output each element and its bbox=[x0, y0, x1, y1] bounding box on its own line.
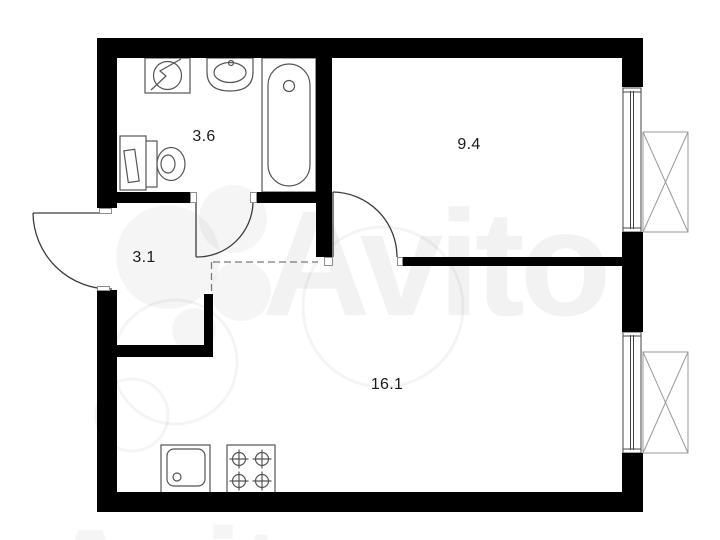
door-jamb bbox=[250, 192, 257, 203]
bathtub-icon bbox=[262, 58, 316, 192]
door-jamb bbox=[97, 286, 110, 291]
room-door bbox=[333, 192, 397, 257]
wall-room-divider-vertical bbox=[316, 58, 332, 257]
ac-basket-icon bbox=[643, 132, 688, 232]
door-jamb bbox=[324, 257, 333, 266]
kitchen-living-area-label: 16.1 bbox=[364, 376, 410, 394]
window-icon bbox=[623, 332, 641, 453]
zone-boundary-dashed bbox=[212, 262, 319, 294]
wall-left-lower bbox=[97, 290, 117, 512]
wall-right-middle bbox=[622, 232, 643, 332]
door-jamb bbox=[190, 192, 197, 203]
bathroom-cabinet-icon bbox=[120, 136, 146, 190]
ac-basket-icon bbox=[643, 352, 688, 453]
washing-machine-icon bbox=[145, 58, 190, 93]
bathroom-area-label: 3.6 bbox=[184, 128, 224, 146]
wall-room-kitchen-divider bbox=[400, 257, 622, 266]
wall-bathroom-south-left bbox=[117, 192, 190, 203]
door-jamb bbox=[397, 257, 403, 266]
wall-right-bottom bbox=[622, 453, 643, 512]
stove-icon bbox=[227, 445, 275, 493]
hallway-area-label: 3.1 bbox=[124, 249, 164, 267]
wall-right-top bbox=[622, 38, 643, 87]
wall-left-upper bbox=[97, 38, 117, 208]
kitchen-sink-icon bbox=[161, 445, 210, 493]
living-room-area-label: 9.4 bbox=[449, 136, 489, 154]
bathroom-door bbox=[196, 202, 253, 257]
floor-plan: Avito Avito bbox=[0, 0, 720, 540]
toilet-icon bbox=[145, 141, 185, 187]
wall-kitchen-horizontal bbox=[117, 345, 213, 357]
window-icon bbox=[623, 88, 641, 232]
door-jamb bbox=[99, 208, 112, 214]
wall-top bbox=[97, 38, 643, 58]
entrance-door bbox=[33, 213, 112, 289]
bathroom-sink-icon bbox=[207, 58, 253, 91]
wall-bottom bbox=[97, 492, 643, 512]
